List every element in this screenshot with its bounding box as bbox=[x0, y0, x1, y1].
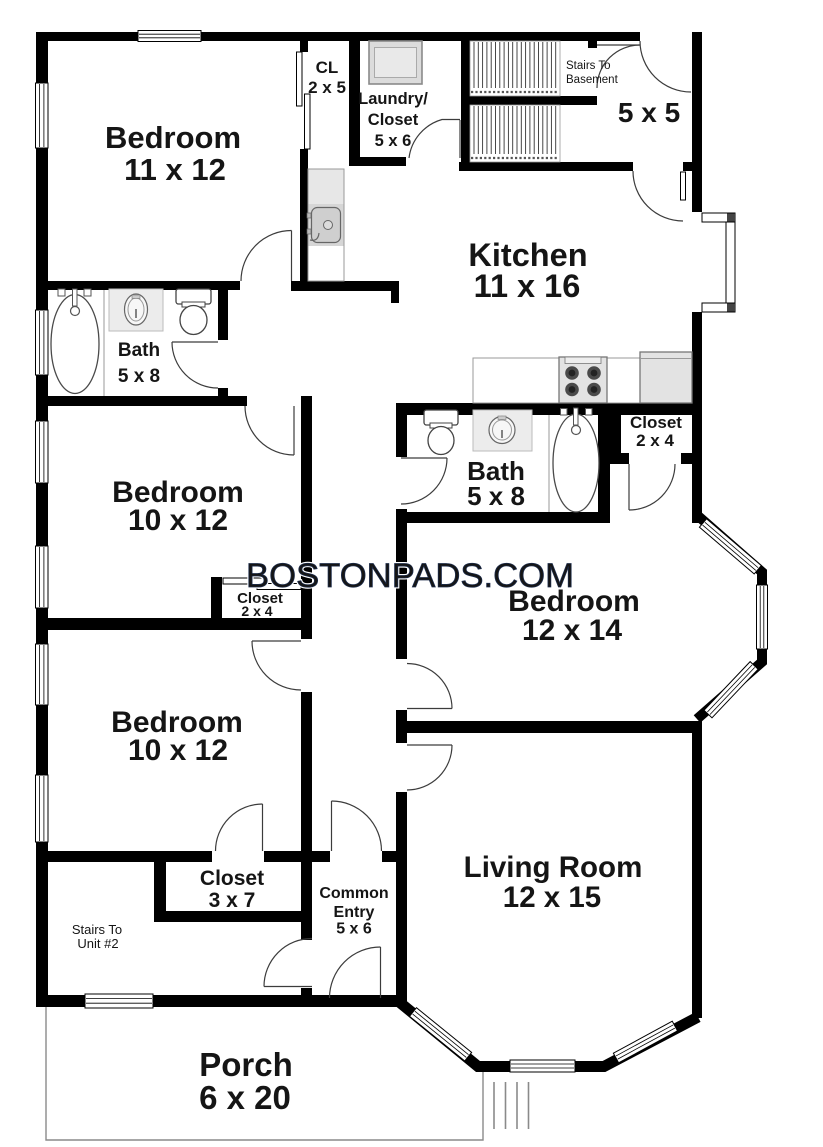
svg-text:Common: Common bbox=[319, 885, 388, 902]
svg-text:5 x 6: 5 x 6 bbox=[375, 132, 412, 150]
svg-text:Bedroom: Bedroom bbox=[105, 120, 241, 155]
svg-text:12 x 14: 12 x 14 bbox=[522, 614, 622, 647]
svg-text:10 x 12: 10 x 12 bbox=[128, 504, 228, 537]
svg-text:Unit #2: Unit #2 bbox=[77, 936, 118, 951]
svg-text:5 x 5: 5 x 5 bbox=[618, 97, 680, 128]
svg-text:12 x 15: 12 x 15 bbox=[503, 881, 601, 914]
svg-text:Porch: Porch bbox=[199, 1046, 293, 1083]
svg-text:10 x 12: 10 x 12 bbox=[128, 734, 228, 767]
svg-text:5 x 8: 5 x 8 bbox=[118, 366, 160, 387]
svg-text:2 x 5: 2 x 5 bbox=[308, 78, 346, 97]
svg-text:Living Room: Living Room bbox=[464, 851, 643, 884]
svg-text:Stairs To: Stairs To bbox=[566, 60, 611, 72]
svg-text:BOSTONPADS.COM: BOSTONPADS.COM bbox=[246, 557, 574, 595]
svg-text:Entry: Entry bbox=[334, 904, 375, 921]
svg-text:Closet: Closet bbox=[200, 867, 264, 890]
svg-text:5 x 8: 5 x 8 bbox=[467, 481, 525, 511]
svg-text:Closet: Closet bbox=[630, 413, 682, 432]
svg-text:2 x 4: 2 x 4 bbox=[636, 431, 674, 450]
svg-text:5 x 6: 5 x 6 bbox=[336, 921, 372, 938]
svg-text:CL: CL bbox=[316, 58, 339, 77]
svg-text:Basement: Basement bbox=[566, 74, 619, 86]
svg-text:6 x 20: 6 x 20 bbox=[199, 1079, 291, 1116]
svg-text:Closet: Closet bbox=[368, 111, 419, 129]
svg-text:Bath: Bath bbox=[118, 340, 160, 361]
svg-text:3 x 7: 3 x 7 bbox=[209, 889, 256, 912]
svg-text:Laundry/: Laundry/ bbox=[358, 90, 428, 108]
svg-text:2 x 4: 2 x 4 bbox=[241, 603, 272, 619]
svg-text:11 x 16: 11 x 16 bbox=[474, 268, 581, 304]
svg-text:Stairs To: Stairs To bbox=[72, 922, 122, 937]
svg-text:11 x 12: 11 x 12 bbox=[124, 152, 226, 187]
